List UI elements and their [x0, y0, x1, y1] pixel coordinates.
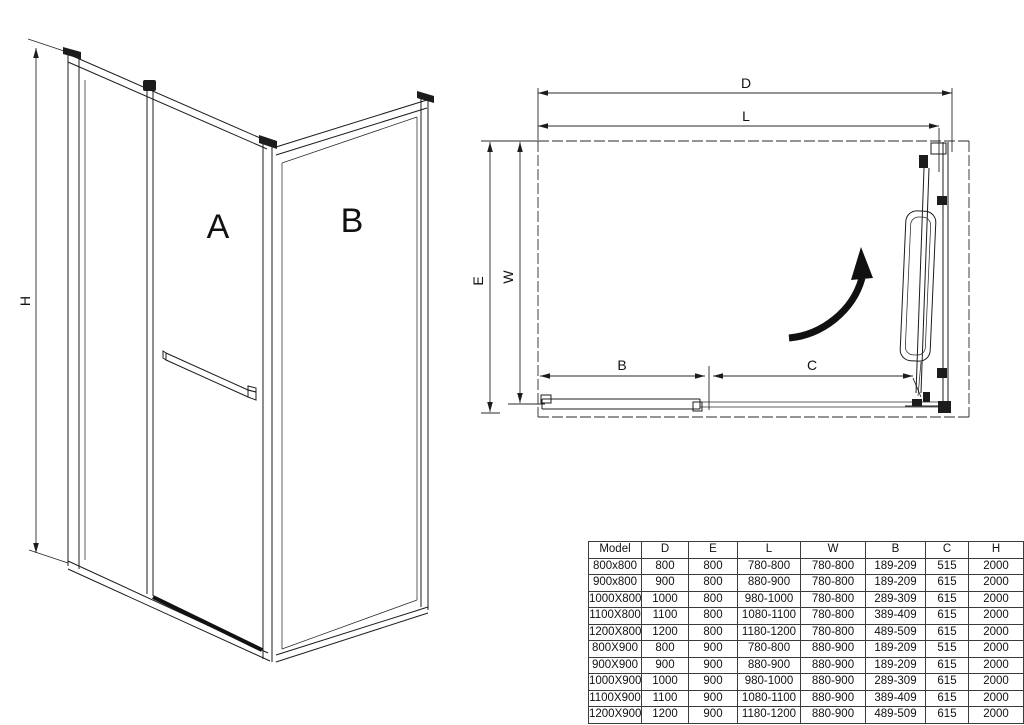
table-cell: 615: [926, 690, 969, 707]
table-cell: 880-900: [801, 707, 866, 724]
table-cell: 2000: [969, 591, 1024, 608]
sliding-door-a: [143, 80, 262, 650]
table-cell: 489-509: [866, 707, 926, 724]
table-row: 1200X80012008001180-1200780-800489-50961…: [589, 624, 1024, 641]
column-header: C: [926, 542, 969, 559]
table-cell: 2000: [969, 575, 1024, 592]
table-cell: 1100X800: [589, 608, 642, 625]
column-header: H: [969, 542, 1024, 559]
plan-view: D L E W B C: [470, 75, 972, 417]
column-header: W: [801, 542, 866, 559]
table-cell: 1000X900: [589, 674, 642, 691]
table-cell: 880-900: [738, 657, 801, 674]
table-cell: 389-409: [866, 608, 926, 625]
dim-b: B: [540, 357, 709, 410]
height-dim-label: H: [17, 296, 33, 306]
dim-w-label: W: [500, 270, 516, 284]
table-cell: 615: [926, 624, 969, 641]
table-cell: 780-800: [801, 575, 866, 592]
table-cell: 1180-1200: [738, 707, 801, 724]
panel-b-label: B: [341, 202, 364, 240]
table-cell: 1000: [642, 591, 689, 608]
size-table-grid: ModelDELWBCH 800x800800800780-800780-800…: [588, 541, 1024, 724]
table-cell: 1000X800: [589, 591, 642, 608]
table-cell: 880-900: [801, 674, 866, 691]
table-cell: 1080-1100: [738, 608, 801, 625]
shower-enclosure-spec-sheet: H: [0, 0, 1024, 725]
table-cell: 780-800: [801, 558, 866, 575]
towel-bar-handle: [163, 351, 256, 400]
table-cell: 900: [689, 707, 738, 724]
table-cell: 900X900: [589, 657, 642, 674]
table-cell: 800: [689, 608, 738, 625]
size-table: ModelDELWBCH 800x800800800780-800780-800…: [588, 541, 1024, 724]
table-cell: 800: [689, 575, 738, 592]
table-cell: 780-800: [738, 641, 801, 658]
table-cell: 1100X900: [589, 690, 642, 707]
table-cell: 1100: [642, 608, 689, 625]
table-cell: 1200: [642, 707, 689, 724]
table-cell: 900: [689, 674, 738, 691]
corner-fitting: [938, 401, 951, 413]
table-cell: 800: [642, 641, 689, 658]
table-row: 800X900800900780-800880-900189-209515200…: [589, 641, 1024, 658]
table-cell: 289-309: [866, 591, 926, 608]
table-cell: 515: [926, 641, 969, 658]
table-cell: 780-800: [801, 624, 866, 641]
table-cell: 1200X900: [589, 707, 642, 724]
table-cell: 980-1000: [738, 674, 801, 691]
table-cell: 780-800: [801, 608, 866, 625]
table-cell: 880-900: [738, 575, 801, 592]
table-cell: 1200: [642, 624, 689, 641]
table-cell: 1200X800: [589, 624, 642, 641]
table-cell: 900x800: [589, 575, 642, 592]
dim-height: H: [17, 39, 68, 563]
dim-d-label: D: [741, 75, 751, 91]
table-cell: 1080-1100: [738, 690, 801, 707]
table-row: 1200X90012009001180-1200880-900489-50961…: [589, 707, 1024, 724]
dim-e-label: E: [470, 276, 486, 285]
table-cell: 515: [926, 558, 969, 575]
dim-b-label: B: [617, 357, 626, 373]
hinge-top: [919, 155, 928, 168]
table-cell: 189-209: [866, 657, 926, 674]
table-cell: 2000: [969, 608, 1024, 625]
table-cell: 389-409: [866, 690, 926, 707]
table-cell: 2000: [969, 674, 1024, 691]
table-cell: 189-209: [866, 558, 926, 575]
dim-l: L: [538, 108, 939, 172]
table-cell: 189-209: [866, 641, 926, 658]
door-swing-arrow: [789, 247, 873, 338]
table-row: 800x800800800780-800780-800189-209515200…: [589, 558, 1024, 575]
roller-bracket: [143, 80, 156, 91]
column-header: Model: [589, 542, 642, 559]
table-cell: 900: [642, 575, 689, 592]
pivot-hinge: [923, 392, 930, 402]
dim-c: C: [713, 357, 921, 397]
table-cell: 900: [642, 657, 689, 674]
side-panel-b: [276, 91, 434, 662]
table-cell: 800X900: [589, 641, 642, 658]
wall-clamp: [937, 196, 947, 205]
table-cell: 780-800: [738, 558, 801, 575]
plan-sliding-panel: [541, 395, 941, 411]
table-cell: 615: [926, 608, 969, 625]
table-row: 1000X9001000900980-1000880-900289-309615…: [589, 674, 1024, 691]
dim-l-label: L: [742, 108, 750, 124]
pivot-hinge: [912, 399, 922, 406]
wall-profile-cap: [63, 47, 81, 59]
table-cell: 1100: [642, 690, 689, 707]
table-cell: 615: [926, 575, 969, 592]
table-cell: 900: [689, 641, 738, 658]
side-post-cap: [417, 91, 434, 103]
table-cell: 1180-1200: [738, 624, 801, 641]
table-cell: 880-900: [801, 657, 866, 674]
table-row: 1000X8001000800980-1000780-800289-309615…: [589, 591, 1024, 608]
table-cell: 800: [689, 624, 738, 641]
table-row: 1100X90011009001080-1100880-900389-40961…: [589, 690, 1024, 707]
panel-a-label: A: [207, 208, 230, 246]
table-cell: 2000: [969, 558, 1024, 575]
column-header: L: [738, 542, 801, 559]
table-cell: 880-900: [801, 641, 866, 658]
table-row: 900x800900800880-900780-800189-209615200…: [589, 575, 1024, 592]
table-cell: 2000: [969, 707, 1024, 724]
wall-clamp: [937, 368, 947, 378]
table-cell: 615: [926, 657, 969, 674]
column-header: B: [866, 542, 926, 559]
column-header: D: [642, 542, 689, 559]
table-cell: 615: [926, 707, 969, 724]
table-cell: 880-900: [801, 690, 866, 707]
table-row: 900X900900900880-900880-900189-209615200…: [589, 657, 1024, 674]
table-cell: 900: [689, 690, 738, 707]
table-cell: 2000: [969, 657, 1024, 674]
column-header: E: [689, 542, 738, 559]
table-cell: 489-509: [866, 624, 926, 641]
table-cell: 615: [926, 591, 969, 608]
table-cell: 780-800: [801, 591, 866, 608]
dim-c-label: C: [807, 357, 817, 373]
table-cell: 980-1000: [738, 591, 801, 608]
table-cell: 2000: [969, 690, 1024, 707]
table-cell: 800: [642, 558, 689, 575]
table-cell: 2000: [969, 641, 1024, 658]
bottom-track: [153, 597, 262, 650]
table-cell: 189-209: [866, 575, 926, 592]
table-row: 1100X80011008001080-1100780-800389-40961…: [589, 608, 1024, 625]
table-cell: 2000: [969, 624, 1024, 641]
table-header-row: ModelDELWBCH: [589, 542, 1024, 559]
table-cell: 900: [689, 657, 738, 674]
table-cell: 289-309: [866, 674, 926, 691]
table-cell: 1000: [642, 674, 689, 691]
table-cell: 800: [689, 558, 738, 575]
table-cell: 615: [926, 674, 969, 691]
table-cell: 800: [689, 591, 738, 608]
table-cell: 800x800: [589, 558, 642, 575]
isometric-view: H: [17, 39, 434, 662]
